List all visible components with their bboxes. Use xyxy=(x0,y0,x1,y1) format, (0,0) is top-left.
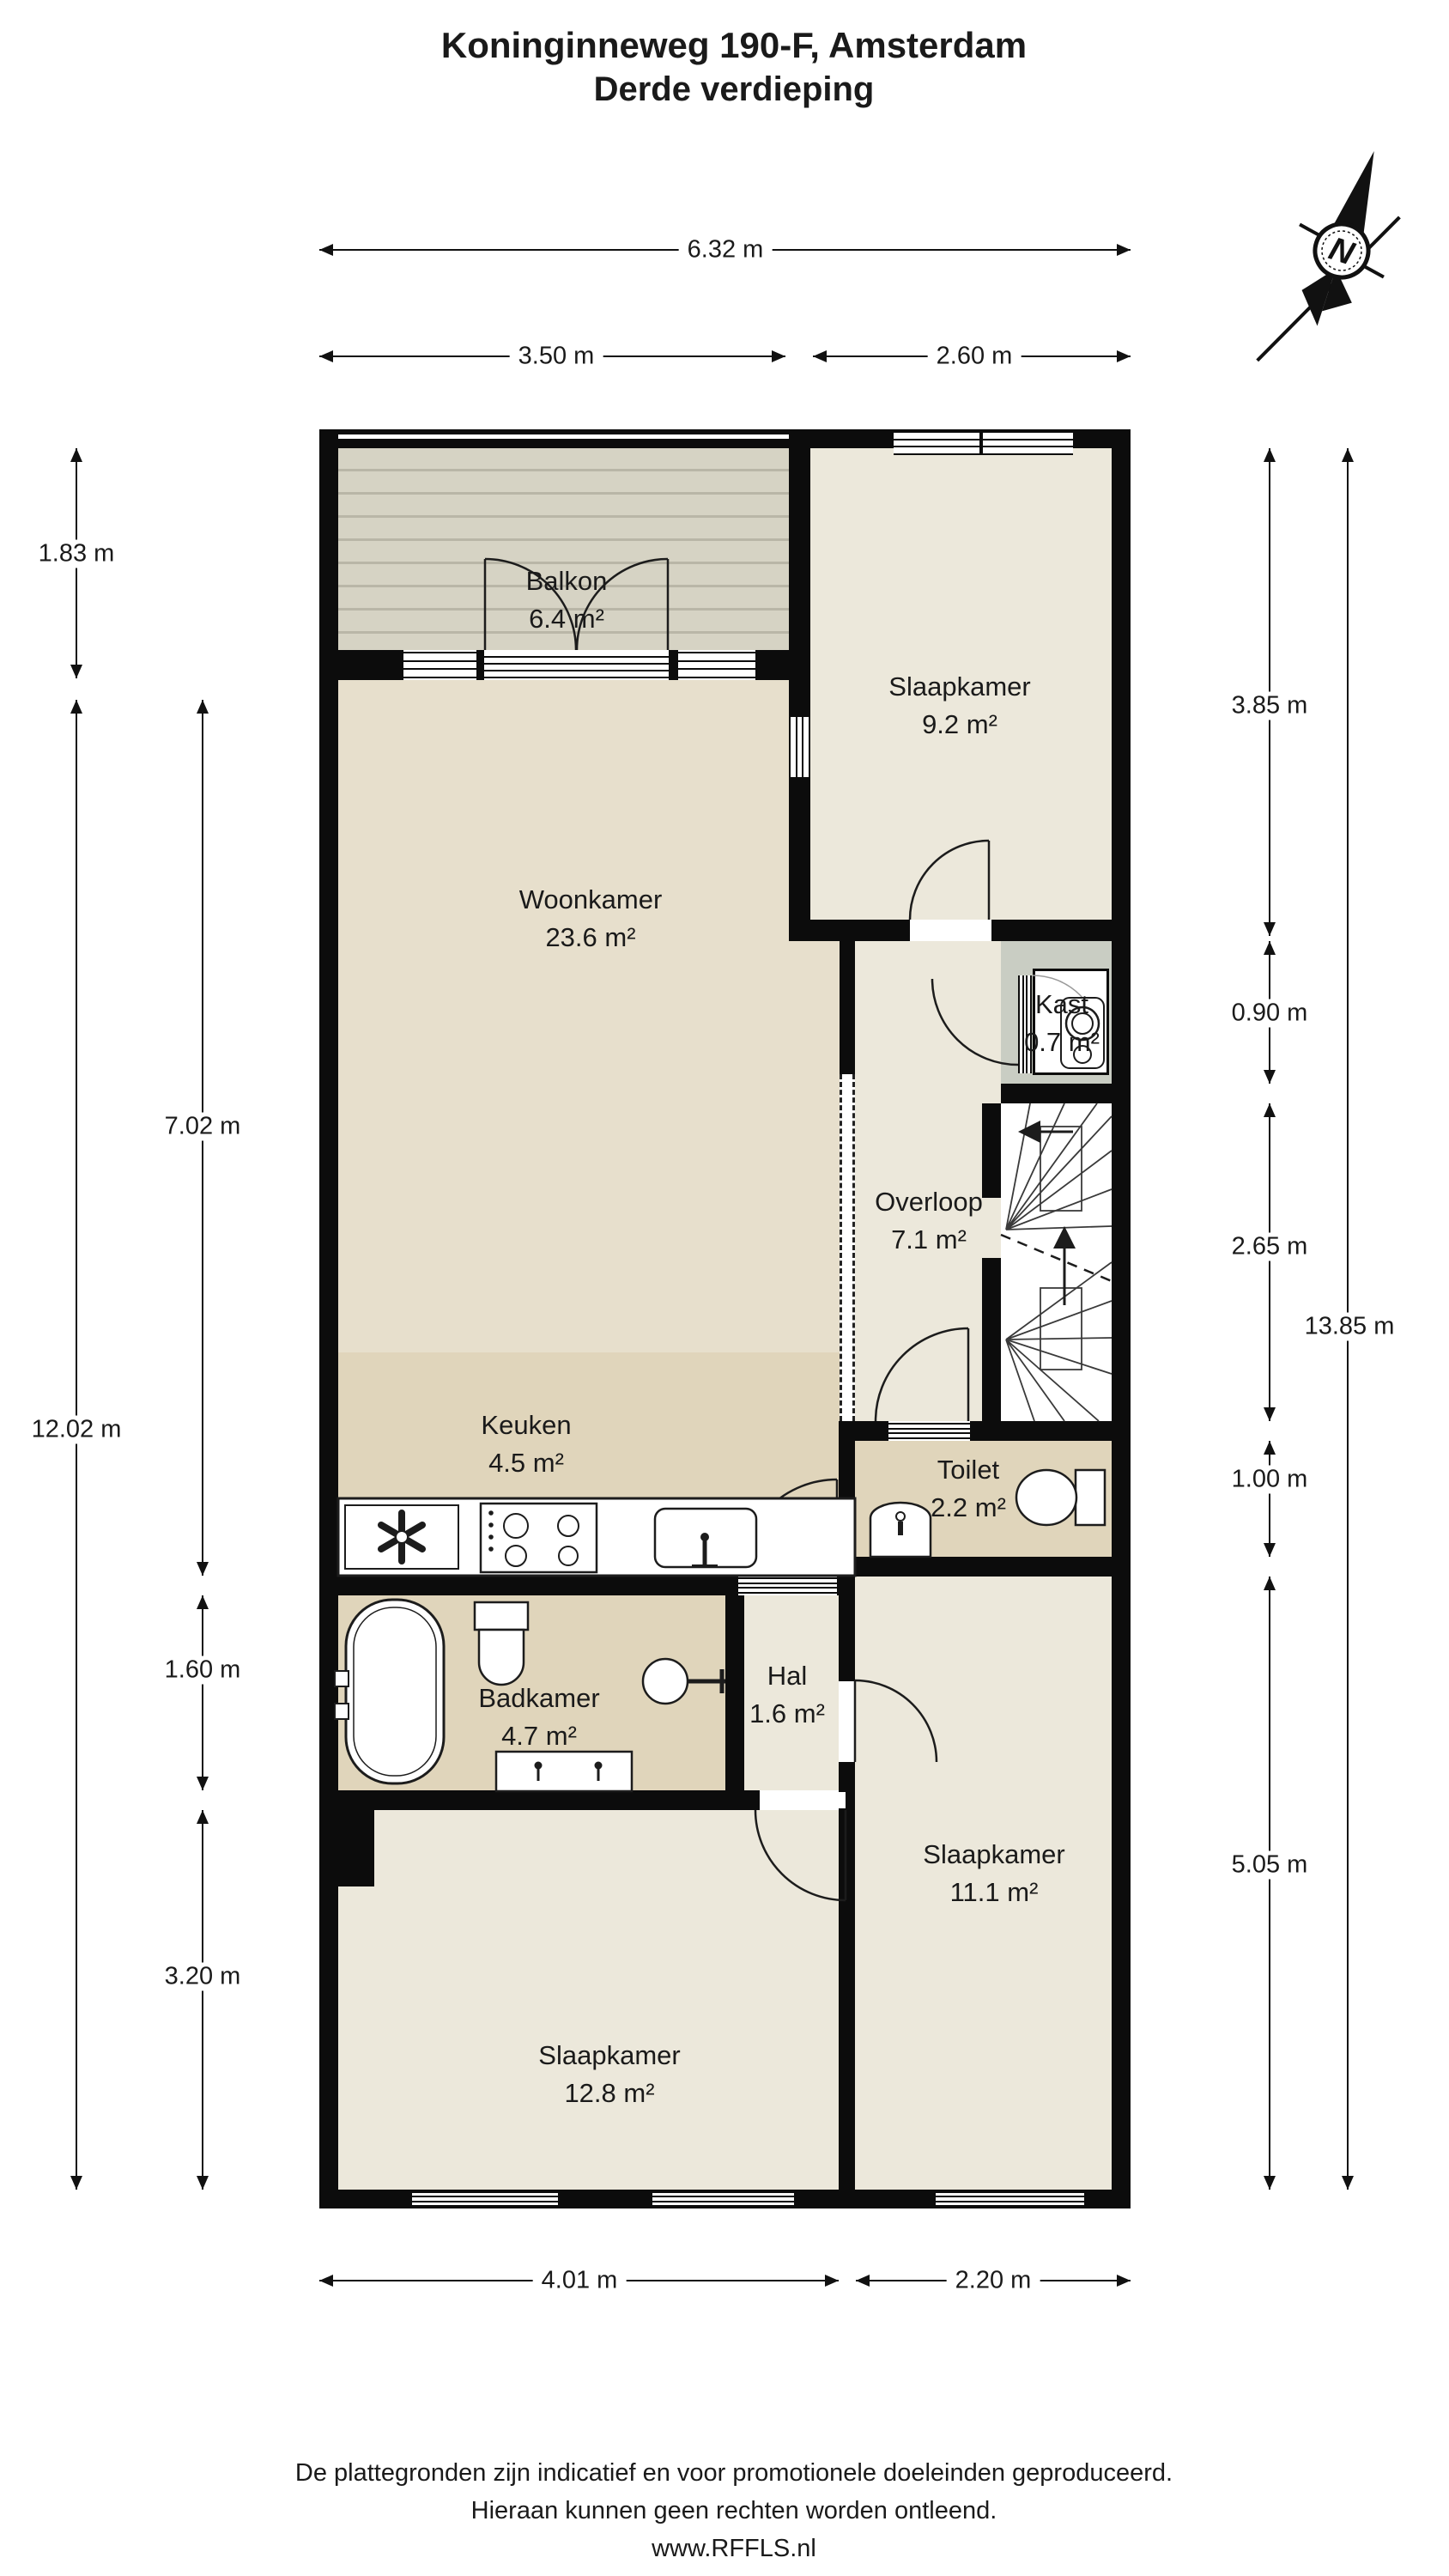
label-balkon: Balkon6.4 m² xyxy=(526,562,608,638)
dim-line xyxy=(1269,1577,1270,2190)
label-hal: Hal1.6 m² xyxy=(749,1657,825,1733)
label-toilet: Toilet2.2 m² xyxy=(931,1451,1006,1527)
dim-top-right: 2.60 m xyxy=(928,343,1022,371)
dim-top-left: 3.50 m xyxy=(510,343,603,371)
dim-right-toilet: 1.00 m xyxy=(1223,1466,1317,1494)
dim-right-bedroom-bottom: 5.05 m xyxy=(1223,1851,1317,1880)
dim-bottom-right: 2.20 m xyxy=(947,2267,1040,2295)
dim-line xyxy=(202,1595,203,1790)
door-arc xyxy=(910,841,989,920)
vanity-icon xyxy=(496,1752,632,1791)
dim-line xyxy=(76,700,77,2190)
stairs-arrow-up xyxy=(1053,1226,1076,1249)
bathtub-icon xyxy=(346,1600,444,1783)
dim-line xyxy=(1269,1441,1270,1557)
dim-left-total: 12.02 m xyxy=(23,1416,130,1444)
label-overloop: Overloop7.1 m² xyxy=(875,1183,983,1259)
dim-top-total: 6.32 m xyxy=(679,236,773,264)
dim-right-stairs: 2.65 m xyxy=(1223,1233,1317,1261)
label-slaapkamer-left: Slaapkamer12.8 m² xyxy=(538,2037,680,2112)
dim-left-balcony: 1.83 m xyxy=(30,540,124,568)
kitchen-counter xyxy=(338,1498,855,1576)
label-slaapkamer-right: Slaapkamer11.1 m² xyxy=(923,1836,1064,1911)
wc-tank xyxy=(475,1602,528,1630)
dim-line xyxy=(1269,1103,1270,1421)
door-arc xyxy=(855,1680,937,1762)
label-keuken: Keuken4.5 m² xyxy=(481,1406,571,1482)
stairs xyxy=(1001,1103,1112,1421)
dim-line xyxy=(202,1810,203,2190)
door-arc xyxy=(932,979,1018,1065)
toilet-tank xyxy=(1076,1470,1105,1525)
dim-left-bath: 1.60 m xyxy=(156,1656,250,1685)
dim-left-upper: 7.02 m xyxy=(156,1113,250,1141)
floorplan-page: Koninginneweg 190-F, Amsterdam Derde ver… xyxy=(0,0,1449,2576)
label-kast: Kast0.7 m² xyxy=(1024,986,1100,1061)
stove-icon xyxy=(481,1504,597,1572)
compass-icon: N xyxy=(1256,137,1420,390)
dim-right-bedroom-top: 3.85 m xyxy=(1223,692,1317,720)
door-arc xyxy=(876,1328,968,1421)
plan-symbols-layer: N xyxy=(0,0,1449,2576)
dim-left-bedroom: 3.20 m xyxy=(156,1963,250,1991)
toilet-bowl-icon xyxy=(1016,1470,1076,1525)
stairs-arrow-left xyxy=(1018,1121,1040,1143)
round-basin-icon xyxy=(643,1659,688,1704)
label-badkamer: Badkamer4.7 m² xyxy=(478,1680,599,1755)
door-arc xyxy=(755,1810,846,1900)
label-slaapkamer-top: Slaapkamer9.2 m² xyxy=(888,668,1030,744)
wc-bowl-icon xyxy=(479,1630,524,1685)
label-woonkamer: Woonkamer23.6 m² xyxy=(519,881,663,957)
dim-right-closet: 0.90 m xyxy=(1223,999,1317,1028)
dim-bottom-left: 4.01 m xyxy=(533,2267,627,2295)
dim-right-total: 13.85 m xyxy=(1296,1313,1404,1341)
